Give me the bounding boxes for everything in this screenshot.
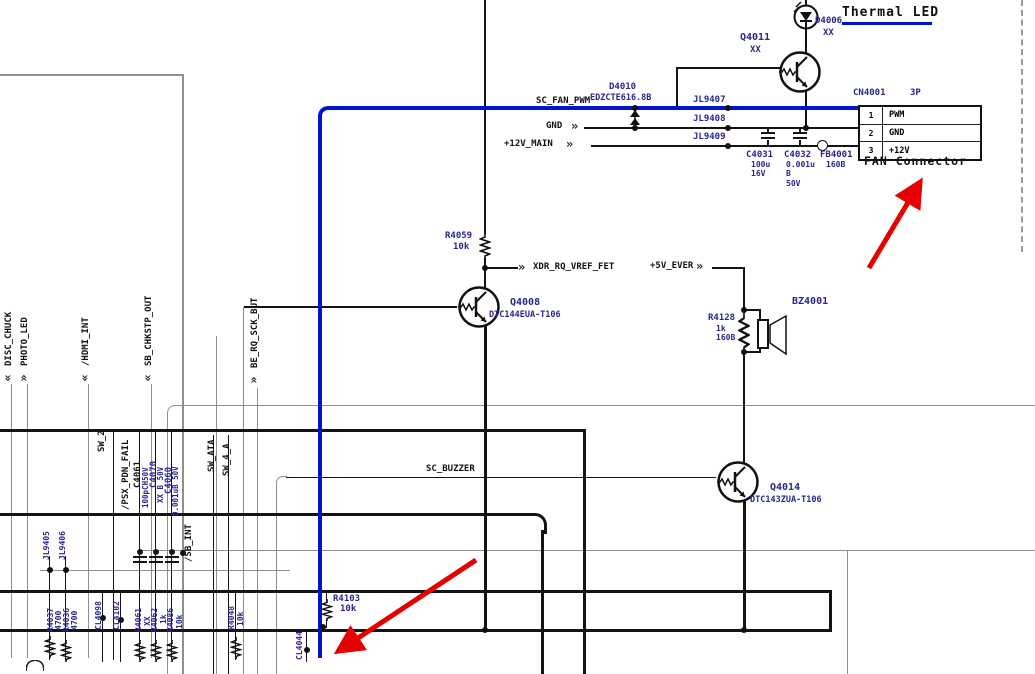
highlighted-trace-horizontal <box>334 106 858 110</box>
wire <box>829 590 832 632</box>
wire <box>761 132 775 134</box>
junction-dot <box>169 549 175 555</box>
refdes-jl9409: JL9409 <box>693 132 726 143</box>
chevron-right-icon: » <box>571 120 578 132</box>
pin-name: GND <box>883 125 980 142</box>
connector-size: 3P <box>910 88 921 99</box>
shield-scallops <box>26 660 456 673</box>
chevron-right-icon: » <box>566 138 573 150</box>
resistor-symbol-r4086 <box>166 640 178 662</box>
wire <box>167 416 168 674</box>
net-12v-main: +12V_MAIN <box>504 139 553 150</box>
refdes-r4059: R4059 <box>445 231 472 242</box>
wire <box>149 556 163 558</box>
page-boundary-dashed-line <box>1021 0 1023 252</box>
wire <box>743 268 745 312</box>
value-fb4001: 160B <box>826 160 845 169</box>
refdes-cl4102: CL4102 <box>112 601 121 630</box>
wire <box>485 267 518 269</box>
pin-label-hdmi-int: /HDMI_INT <box>81 317 92 366</box>
wire <box>40 570 290 571</box>
refdes-jl9405: JL9405 <box>42 531 51 560</box>
resistor-symbol-r4059 <box>479 233 491 259</box>
junction-dot <box>632 125 638 131</box>
junction-dot <box>63 567 69 573</box>
refdes-q4008: Q4008 <box>510 297 540 309</box>
refdes-q4011: Q4011 <box>740 32 770 44</box>
net-sb-int: /SB_INT <box>184 524 195 562</box>
wire <box>306 630 307 662</box>
refdes-cn4001: CN4001 <box>853 88 886 99</box>
junction-dot <box>482 265 488 271</box>
wire <box>743 500 746 631</box>
wire <box>484 0 486 234</box>
wire <box>584 127 858 129</box>
value-c4032: 0.001u B 50V <box>786 160 815 188</box>
junction-dot <box>741 349 747 355</box>
pin-label-be-rq-sck-but: BE_RQ_SCK_BUT <box>250 298 261 368</box>
resistor-symbol-r4037 <box>44 636 56 658</box>
chevron-down-icon: « <box>142 374 154 381</box>
wire <box>216 336 217 674</box>
refdes-bz4001: BZ4001 <box>792 296 828 308</box>
value-r4103: 10k <box>340 604 356 615</box>
chevron-down-icon: « <box>79 374 91 381</box>
chevron-up-icon: » <box>18 374 30 381</box>
wire <box>138 550 1035 551</box>
wire <box>583 429 586 674</box>
wire <box>165 556 179 558</box>
refdes-jl9408: JL9408 <box>693 114 726 125</box>
connector-pin-row: 1 PWM <box>860 107 980 125</box>
refdes-cl4098: CL4098 <box>94 601 103 630</box>
thermal-led-underline <box>842 22 932 25</box>
refdes-jl9407: JL9407 <box>693 95 726 106</box>
net-sw-4-a: SW_4_A <box>222 443 233 476</box>
chevron-right-icon: » <box>518 261 525 273</box>
value-d4010: EDZCTE616.8B <box>590 93 651 103</box>
wire <box>244 306 457 308</box>
junction-dot <box>741 627 747 633</box>
value-c4031: 100u 16V <box>751 160 770 179</box>
refdes-jl9406: JL9406 <box>58 531 67 560</box>
net-sc-buzzer: SC_BUZZER <box>426 464 475 475</box>
refdes-r4128: R4128 <box>708 313 735 324</box>
fan-connector-caption: FAN Connector <box>864 155 967 169</box>
wire <box>793 132 807 134</box>
wire <box>88 384 89 658</box>
wire <box>767 140 769 146</box>
junction-dot <box>632 105 638 111</box>
transistor-symbol-q4008 <box>457 285 501 329</box>
wire <box>541 530 544 674</box>
chevron-down-icon: « <box>2 374 14 381</box>
value-r4048: 10k <box>236 612 245 626</box>
wire <box>799 140 801 146</box>
pin-label-sb-chkstp-out: SB_CHKSTP_OUT <box>144 296 155 366</box>
value-d4006: XX <box>823 28 834 39</box>
wire <box>847 550 848 674</box>
wire <box>178 405 1035 406</box>
value-r4128: 1k 160B <box>716 324 735 343</box>
junction-dot <box>153 549 159 555</box>
fan-connector-cn4001: 1 PWM 2 GND 3 +12V <box>858 105 982 161</box>
transistor-symbol-q4011 <box>778 50 822 94</box>
junction-dot <box>725 125 731 131</box>
chevron-up-icon: » <box>248 376 260 383</box>
net-gnd: GND <box>546 121 562 132</box>
connector-pin-row: 2 GND <box>860 125 980 143</box>
junction-dot <box>741 307 747 313</box>
net-5v-ever: +5V_EVER <box>650 261 693 272</box>
wire <box>0 74 183 76</box>
wire <box>761 137 775 139</box>
pin-label-photo-led: PHOTO_LED <box>20 317 31 366</box>
junction-dot <box>47 567 53 573</box>
value-r4059: 10k <box>453 242 469 253</box>
wire <box>286 477 716 478</box>
wire <box>793 137 807 139</box>
junction-dot <box>137 549 143 555</box>
value-q4014: DTC143ZUA-T106 <box>750 495 822 505</box>
pin-label-disc-chuck: DISC_CHUCK <box>4 312 15 366</box>
wire <box>182 74 184 674</box>
schematic-page: { "title": {"text": "Thermal LED"}, "con… <box>0 0 1035 674</box>
value-r4086: 10k <box>175 615 184 629</box>
wire <box>133 556 147 558</box>
pin-number: 1 <box>860 107 883 124</box>
wire <box>11 384 12 658</box>
resistor-symbol-r4036 <box>60 640 72 662</box>
wire <box>676 67 781 69</box>
red-arrow-annotation-fan-connector <box>855 168 940 278</box>
wire <box>712 267 745 269</box>
junction-dot <box>304 647 310 653</box>
wire <box>743 350 745 466</box>
refdes-d4010: D4010 <box>609 82 636 93</box>
net-psx-pdn-fail: /PSX_PDN_FAIL <box>121 440 132 510</box>
thermal-led-title: Thermal LED <box>842 5 939 20</box>
value-r4036: 4700 <box>70 611 79 630</box>
net-sw-ata: SW_ATA <box>207 439 218 472</box>
junction-dot <box>803 125 809 131</box>
junction-dot <box>725 143 731 149</box>
wire <box>0 513 528 516</box>
net-sw-2: SW_2 <box>97 430 108 452</box>
net-xdr-rq-vref-fet: XDR_RQ_VREF_FET <box>533 262 614 273</box>
wire <box>0 429 586 432</box>
value-q4008: DTC144EUA-T106 <box>489 310 561 320</box>
resistor-symbol-r4048 <box>230 637 242 659</box>
wire <box>27 384 28 658</box>
chevron-right-icon: » <box>696 260 703 272</box>
value-c4060: 0.001uB 50V <box>172 466 181 516</box>
junction-dot <box>725 105 731 111</box>
scallop-arc <box>26 660 44 671</box>
pin-number: 2 <box>860 125 883 142</box>
refdes-cl4044: CL4044 <box>295 631 304 660</box>
resistor-symbol-r4061 <box>134 640 146 662</box>
wire <box>149 561 163 563</box>
wire <box>167 405 180 418</box>
wire <box>165 561 179 563</box>
buzzer-symbol <box>748 314 796 356</box>
wire <box>676 67 678 110</box>
wire <box>133 561 147 563</box>
net-sc-fan-pwm: SC_FAN_PWM <box>536 96 590 107</box>
value-q4011: XX <box>750 45 761 56</box>
refdes-d4006: D4006 <box>815 16 842 27</box>
pin-name: PWM <box>883 107 980 124</box>
refdes-q4014: Q4014 <box>770 482 800 494</box>
resistor-symbol-r4062 <box>150 640 162 662</box>
